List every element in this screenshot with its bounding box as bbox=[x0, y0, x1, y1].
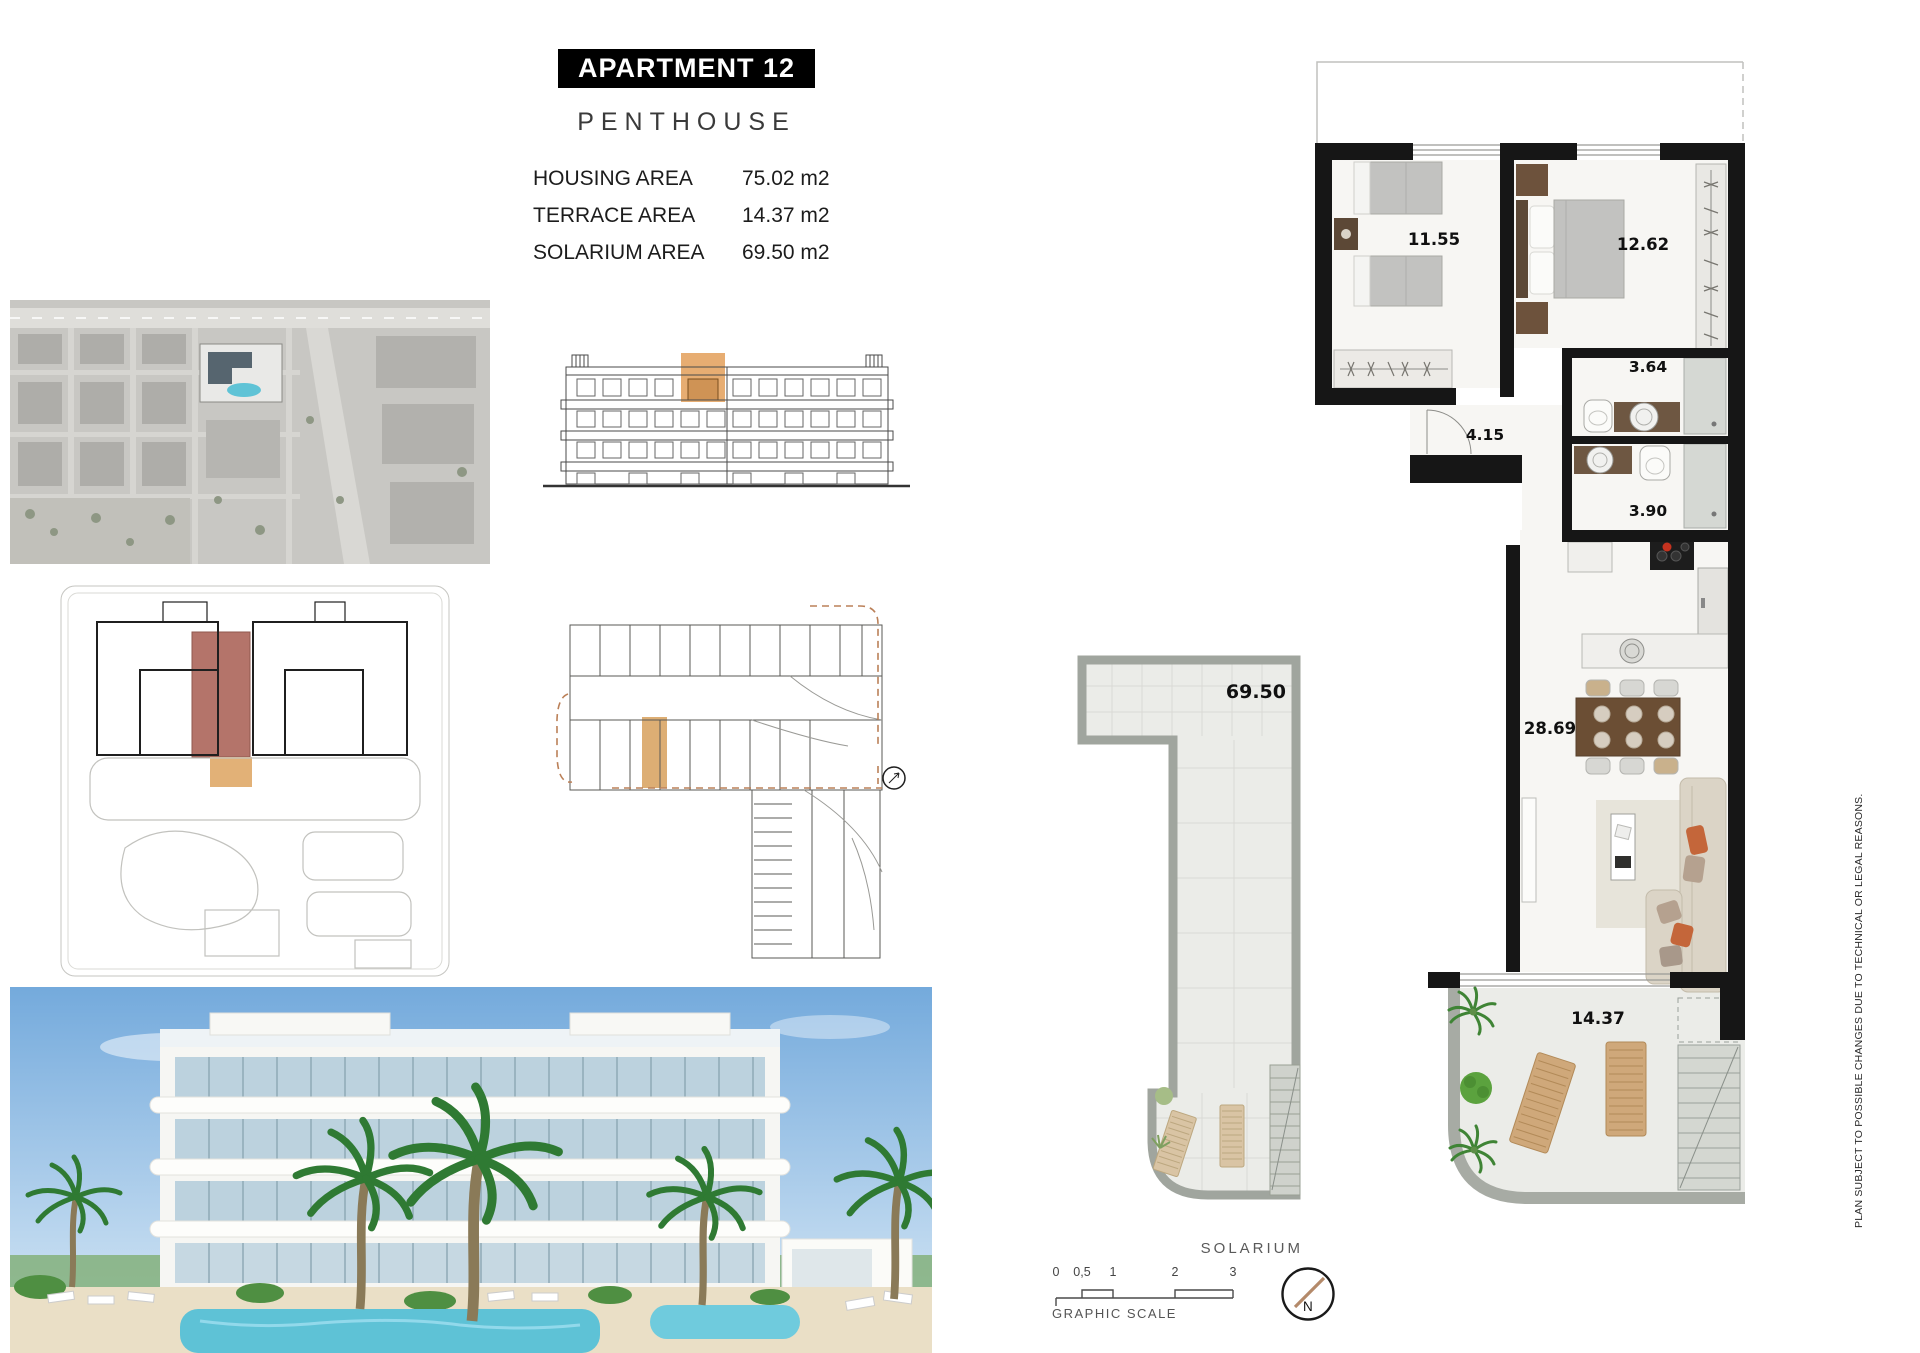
aerial-photo bbox=[10, 300, 490, 564]
solarium-plan: 69.50 bbox=[1072, 618, 1307, 1273]
area-row-housing: HOUSING AREA 75.02 m2 bbox=[533, 160, 873, 197]
compass: N bbox=[1278, 1264, 1342, 1328]
room-area-label-bedroom-2: 12.62 bbox=[1617, 235, 1669, 254]
disclaimer-text: PLAN SUBJECT TO POSSIBLE CHANGES DUE TO … bbox=[1853, 794, 1865, 1229]
swimming-pool bbox=[180, 1309, 600, 1353]
solarium-caption: SOLARIUM bbox=[1158, 1240, 1303, 1257]
page-subtitle: PENTHOUSE bbox=[558, 108, 815, 137]
scale-tick-3: 3 bbox=[1230, 1265, 1237, 1279]
elevation-drawing bbox=[539, 345, 914, 495]
plan-sheet: APARTMENT 12 PENTHOUSE HOUSING AREA 75.0… bbox=[0, 0, 1920, 1353]
room-area-label-bedroom-1: 11.55 bbox=[1408, 230, 1460, 249]
area-row-terrace: TERRACE AREA 14.37 m2 bbox=[533, 197, 873, 234]
room-area-label-hallway: 4.15 bbox=[1466, 426, 1504, 444]
solarium-stairs bbox=[1270, 1065, 1300, 1195]
site-plan bbox=[55, 580, 455, 982]
highlighted-unit-keyplan bbox=[642, 717, 667, 788]
floor-key-plan bbox=[552, 598, 937, 973]
solarium-area-label: 69.50 bbox=[1226, 681, 1286, 703]
area-value: 14.37 m2 bbox=[742, 197, 873, 234]
page-title: APARTMENT 12 bbox=[558, 49, 815, 88]
highlighted-unit-site bbox=[192, 632, 250, 757]
scale-tick-1: 1 bbox=[1110, 1265, 1117, 1279]
area-label: SOLARIUM AREA bbox=[533, 234, 742, 271]
area-label: TERRACE AREA bbox=[533, 197, 742, 234]
room-area-label-bathroom-2: 3.90 bbox=[1629, 502, 1667, 520]
areas-table: HOUSING AREA 75.02 m2 TERRACE AREA 14.37… bbox=[533, 160, 873, 271]
scale-tick-0: 0 bbox=[1053, 1265, 1060, 1279]
compass-north-label: N bbox=[1303, 1299, 1313, 1314]
room-area-label-bathroom-1: 3.64 bbox=[1629, 358, 1667, 376]
scale-tick-2: 2 bbox=[1172, 1265, 1179, 1279]
graphic-scale-caption: GRAPHIC SCALE bbox=[1052, 1306, 1177, 1321]
main-floor-plan: 11.55 12.62 3.64 4.15 3.90 28.69 14.37 bbox=[1310, 50, 1760, 1220]
scale-tick-05: 0,5 bbox=[1073, 1265, 1090, 1279]
room-area-label-terrace: 14.37 bbox=[1571, 1009, 1625, 1029]
area-row-solarium: SOLARIUM AREA 69.50 m2 bbox=[533, 234, 873, 271]
area-value: 69.50 m2 bbox=[742, 234, 873, 271]
graphic-scale: 0 0,5 1 2 3 bbox=[1050, 1262, 1260, 1312]
room-area-label-living: 28.69 bbox=[1524, 719, 1576, 738]
area-value: 75.02 m2 bbox=[742, 160, 873, 197]
highlighted-terrace-site bbox=[210, 757, 252, 787]
sofa bbox=[1680, 778, 1726, 992]
area-label: HOUSING AREA bbox=[533, 160, 742, 197]
building-photo bbox=[10, 987, 932, 1353]
